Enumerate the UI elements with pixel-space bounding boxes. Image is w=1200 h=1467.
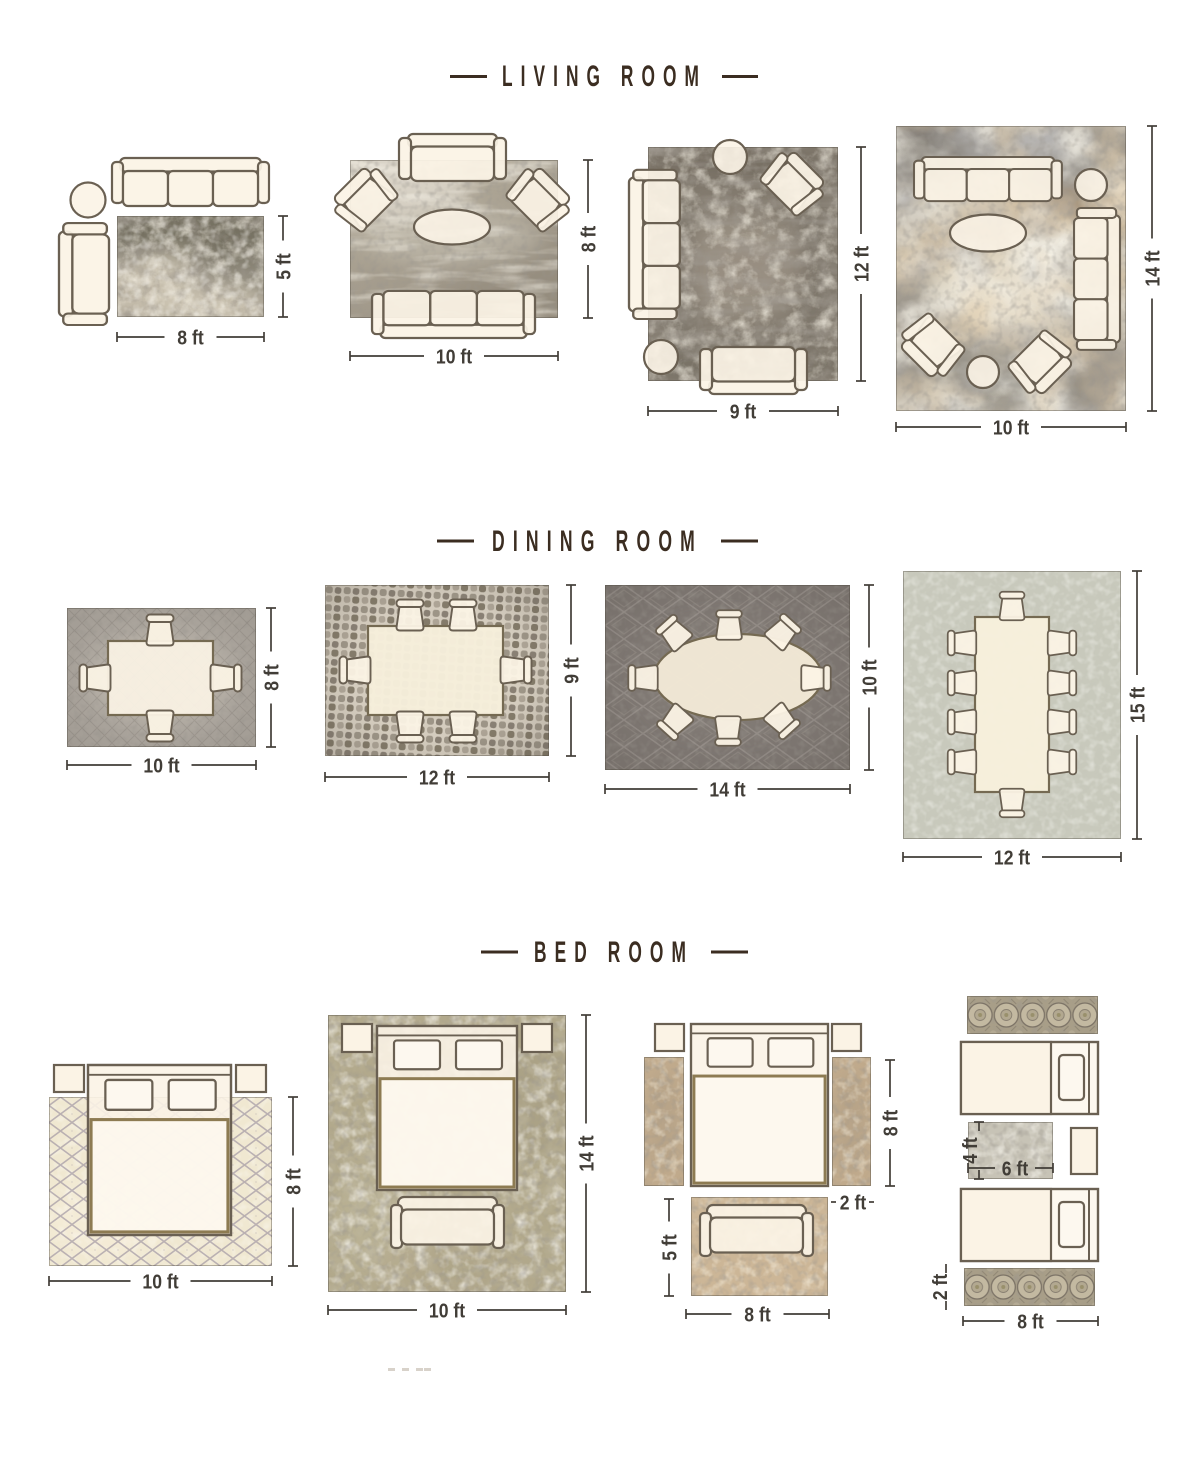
svg-text:8 ft: 8 ft — [260, 664, 282, 691]
svg-text:10 ft: 10 ft — [429, 1299, 466, 1321]
svg-text:15 ft: 15 ft — [1126, 686, 1148, 723]
svg-text:6 ft: 6 ft — [1002, 1157, 1029, 1179]
svg-text:5 ft: 5 ft — [272, 253, 294, 280]
svg-text:12 ft: 12 ft — [850, 245, 872, 282]
svg-text:2 ft: 2 ft — [840, 1191, 867, 1213]
svg-text:14 ft: 14 ft — [575, 1135, 597, 1172]
svg-text:9 ft: 9 ft — [560, 657, 582, 684]
svg-text:14 ft: 14 ft — [709, 778, 746, 800]
svg-text:10 ft: 10 ft — [143, 754, 180, 776]
svg-text:4 ft: 4 ft — [959, 1137, 981, 1164]
svg-text:12 ft: 12 ft — [994, 846, 1031, 868]
svg-text:9 ft: 9 ft — [730, 400, 757, 422]
svg-text:DINING ROOM: DINING ROOM — [492, 525, 703, 558]
svg-text:5 ft: 5 ft — [658, 1234, 680, 1261]
svg-text:BED ROOM: BED ROOM — [534, 936, 694, 969]
svg-text:8 ft: 8 ft — [177, 326, 204, 348]
svg-text:8 ft: 8 ft — [744, 1303, 771, 1325]
svg-text:10 ft: 10 ft — [858, 659, 880, 696]
svg-text:8 ft: 8 ft — [1017, 1310, 1044, 1332]
svg-text:12 ft: 12 ft — [419, 766, 456, 788]
svg-text:LIVING ROOM: LIVING ROOM — [502, 60, 707, 93]
svg-text:8 ft: 8 ft — [879, 1109, 901, 1136]
svg-text:8 ft: 8 ft — [282, 1168, 304, 1195]
svg-text:10 ft: 10 ft — [436, 345, 473, 367]
svg-text:10 ft: 10 ft — [142, 1270, 179, 1292]
svg-text:2 ft: 2 ft — [929, 1273, 951, 1300]
svg-text:8 ft: 8 ft — [577, 225, 599, 252]
svg-text:14 ft: 14 ft — [1141, 250, 1163, 287]
svg-text:10 ft: 10 ft — [993, 416, 1030, 438]
